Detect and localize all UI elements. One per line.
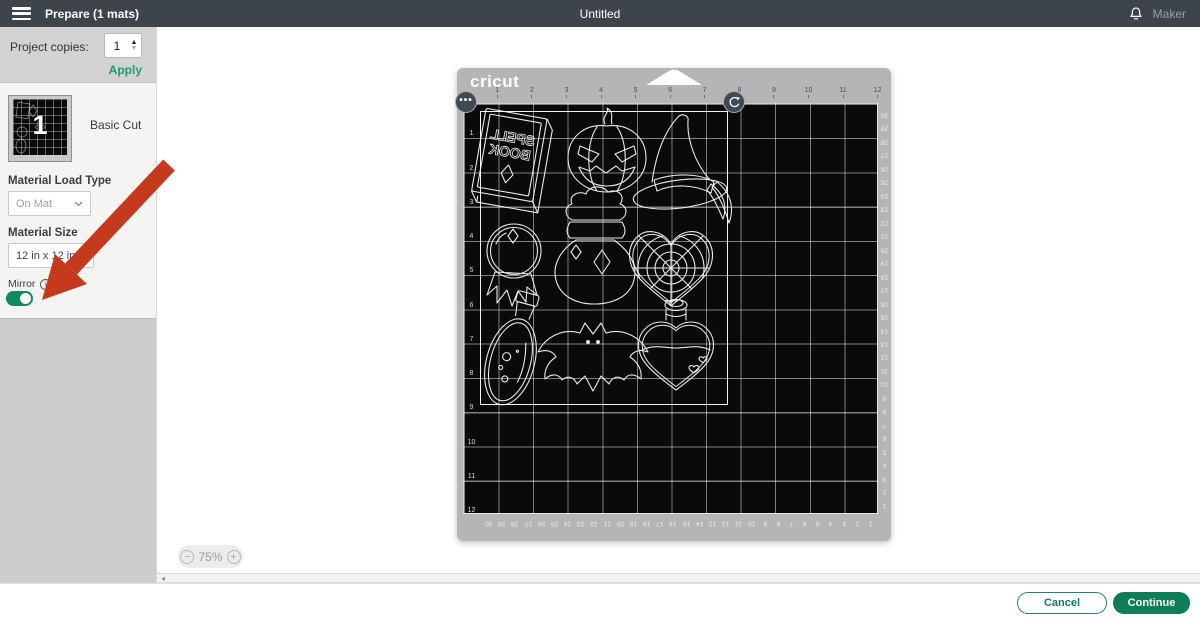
zoom-out-button[interactable]: − (180, 550, 194, 564)
mat-top-ruler: 123456789101112 (480, 87, 895, 101)
stepper-down-icon[interactable]: ▼ (131, 46, 138, 52)
cutting-mat: cricut 123456789101112 ••• 1234567891011… (457, 68, 891, 541)
material-load-type-value: On Mat (16, 198, 74, 210)
prepare-sidebar: Project copies: 1 ▲ ▼ Apply 1 Basic C (0, 27, 157, 583)
document-title: Untitled (0, 7, 1200, 21)
project-copies-input[interactable]: 1 ▲ ▼ (104, 33, 142, 58)
mat-thumbnail[interactable]: 1 (8, 95, 72, 162)
bell-icon[interactable] (1128, 6, 1144, 22)
sidebar-empty-area (0, 318, 156, 583)
menu-icon[interactable] (12, 7, 31, 20)
rotate-icon (728, 96, 741, 109)
zoom-control: − 75% + (178, 545, 243, 568)
zoom-level: 75% (198, 550, 222, 564)
mat-notch (644, 68, 704, 85)
copies-stepper[interactable]: ▲ ▼ (129, 40, 141, 52)
material-size-label: Material Size (8, 227, 78, 239)
mat-cut-surface[interactable]: 123456789101112 SPELL BOOK (463, 103, 878, 514)
footer-bar: Cancel Continue (0, 583, 1200, 621)
mat-right-ruler: 3029282726252423222120191817161514131211… (879, 108, 890, 512)
material-size-select[interactable]: 12 in x 12 in (8, 243, 94, 268)
project-copies-label: Project copies: (10, 40, 89, 54)
mirror-toggle[interactable] (6, 291, 33, 306)
project-copies-section: Project copies: 1 ▲ ▼ Apply (0, 27, 156, 83)
mat-bottom-ruler: 3029282726252423222120191817161514131211… (482, 517, 877, 527)
project-copies-value[interactable]: 1 (105, 39, 129, 53)
mat-options-button[interactable]: ••• (455, 91, 477, 113)
info-icon[interactable]: i (40, 279, 51, 290)
scroll-left-icon[interactable]: ◂ (161, 574, 165, 583)
mirror-toggle-knob (20, 293, 31, 304)
cancel-button[interactable]: Cancel (1017, 592, 1107, 614)
material-size-value: 12 in x 12 in (16, 250, 86, 262)
cut-type-label: Basic Cut (90, 118, 141, 132)
mat-canvas-area: cricut 123456789101112 ••• 1234567891011… (157, 27, 1200, 583)
chevron-down-icon (74, 201, 83, 207)
design-selection-box[interactable] (480, 111, 728, 405)
apply-button[interactable]: Apply (109, 63, 142, 77)
mat-number: 1 (9, 110, 71, 141)
mat-rotate-button[interactable] (723, 91, 745, 113)
horizontal-scrollbar[interactable]: ◂ (157, 573, 1200, 583)
material-load-type-label: Material Load Type (8, 175, 111, 187)
mirror-label: Mirror (8, 278, 35, 290)
machine-name[interactable]: Maker (1153, 7, 1186, 21)
top-bar: Prepare (1 mats) Untitled Maker (0, 0, 1200, 27)
material-load-type-select[interactable]: On Mat (8, 191, 91, 216)
zoom-in-button[interactable]: + (227, 550, 241, 564)
page-title: Prepare (1 mats) (45, 7, 139, 21)
continue-button[interactable]: Continue (1113, 592, 1190, 614)
